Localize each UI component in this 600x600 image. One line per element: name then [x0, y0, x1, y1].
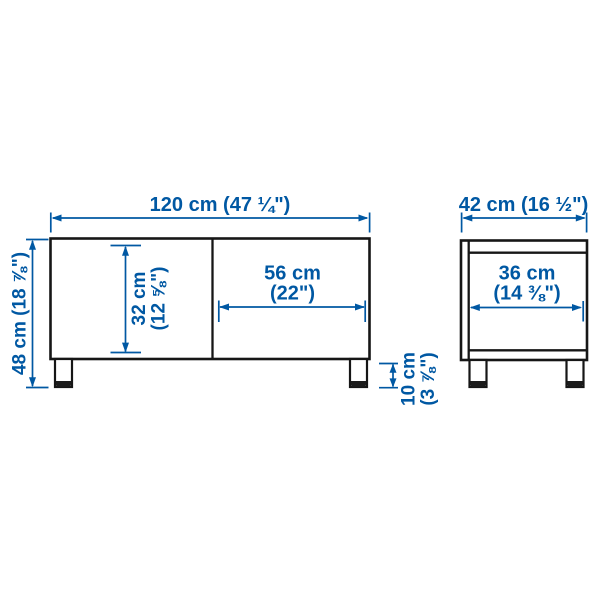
leg-foot: [56, 381, 71, 387]
leg-foot: [470, 381, 485, 387]
front-view-body-outline: [51, 239, 370, 360]
door-width-label-line2: (22"): [270, 283, 315, 305]
arrow-down-icon: [390, 378, 397, 387]
compartment-height-label-line1: 32 cm: [129, 272, 150, 326]
dim-leg-height: 10 cm (3 ⅞"): [379, 352, 439, 406]
front-view-left-leg: [55, 359, 72, 387]
side-view-back-leg: [567, 360, 584, 387]
compartment-height-label-line2: (12 ⅝"): [149, 267, 170, 331]
dimension-diagram-canvas: 120 cm (47 ¼") 48 cm (18 ⅞") 32 cm (12 ⅝…: [0, 0, 600, 600]
dim-overall-width: 120 cm (47 ¼"): [51, 194, 370, 233]
front-view: [51, 239, 370, 388]
inner-depth-label-line1: 36 cm: [499, 263, 556, 285]
leg-foot: [351, 381, 366, 387]
arrow-up-icon: [390, 364, 397, 373]
dim-overall-height: 48 cm (18 ⅞"): [10, 240, 49, 388]
overall-width-label: 120 cm (47 ¼"): [150, 194, 291, 216]
tv-bench-dimension-drawing: 120 cm (47 ¼") 48 cm (18 ⅞") 32 cm (12 ⅝…: [0, 0, 600, 600]
dim-overall-depth: 42 cm (16 ½"): [459, 194, 589, 233]
side-view-front-leg: [470, 360, 487, 387]
arrow-up-icon: [29, 240, 36, 250]
front-view-right-leg: [350, 359, 367, 387]
inner-depth-label-line2: (14 ⅜"): [493, 283, 560, 305]
arrow-left-icon: [52, 215, 62, 222]
arrow-down-icon: [29, 377, 36, 387]
door-width-label-line1: 56 cm: [264, 263, 321, 285]
overall-height-label: 48 cm (18 ⅞"): [10, 252, 31, 375]
leg-foot: [567, 381, 582, 387]
leg-height-label-line2: (3 ⅞"): [418, 352, 439, 405]
arrow-right-icon: [359, 215, 369, 222]
overall-depth-label: 42 cm (16 ½"): [459, 194, 589, 216]
leg-height-label-line1: 10 cm: [399, 352, 420, 406]
